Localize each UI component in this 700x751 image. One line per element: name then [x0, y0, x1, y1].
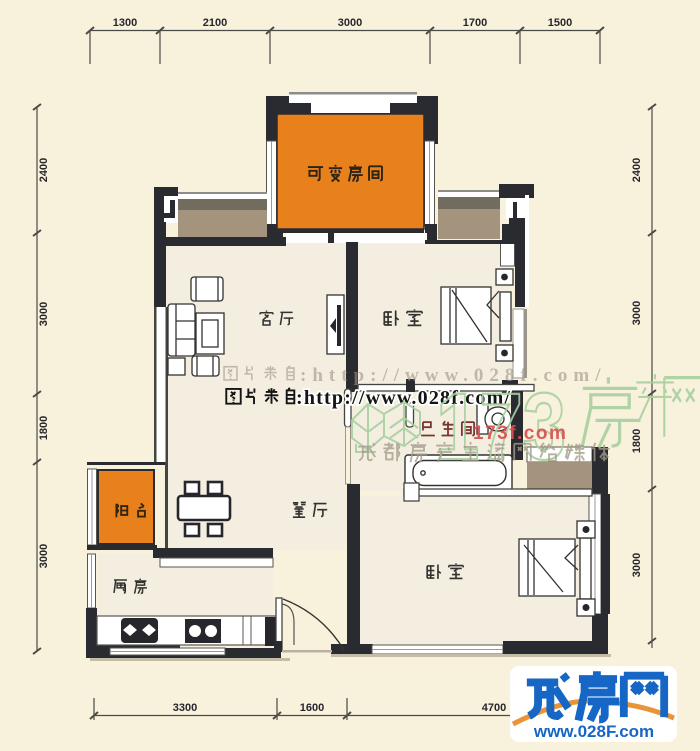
svg-text:www.028F.com: www.028F.com — [533, 722, 654, 741]
svg-text:2400: 2400 — [631, 158, 643, 182]
svg-text:3000: 3000 — [631, 301, 643, 325]
svg-text:3000: 3000 — [631, 553, 643, 577]
svg-text:1600: 1600 — [300, 702, 324, 714]
svg-text:3000: 3000 — [38, 302, 50, 326]
svg-text:1300: 1300 — [113, 17, 137, 29]
svg-text:3000: 3000 — [38, 544, 50, 568]
svg-text:1800: 1800 — [38, 416, 50, 440]
svg-text:4700: 4700 — [482, 702, 506, 714]
svg-text:1700: 1700 — [463, 17, 487, 29]
svg-text:2400: 2400 — [38, 158, 50, 182]
svg-text:1800: 1800 — [631, 429, 643, 453]
svg-text:173f.com: 173f.com — [473, 423, 567, 444]
svg-text:2100: 2100 — [203, 17, 227, 29]
svg-text:3000: 3000 — [338, 17, 362, 29]
svg-text:3300: 3300 — [173, 702, 197, 714]
svg-text:1500: 1500 — [548, 17, 572, 29]
